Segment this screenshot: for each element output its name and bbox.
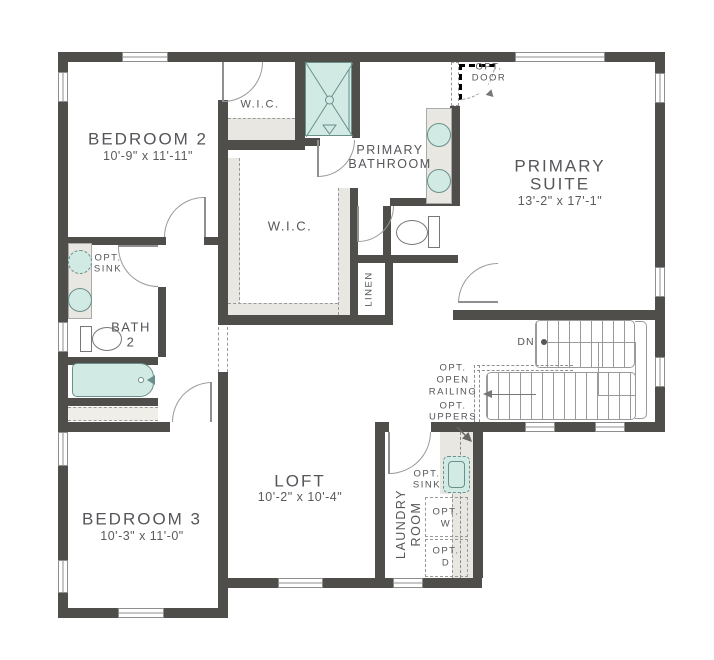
door-leaf — [388, 432, 390, 474]
tub-faucet-icon — [147, 375, 155, 385]
stairs-center-line — [545, 342, 635, 343]
closet-shelf — [228, 158, 240, 315]
wall-shower-right — [352, 62, 360, 138]
optional-sink — [68, 250, 92, 274]
annotation-opt-washer-1: OPT. — [432, 507, 459, 517]
room-label-laundry-2: ROOM — [409, 489, 424, 559]
shower-glass-icon — [306, 63, 353, 137]
closet-shelf — [228, 303, 338, 315]
room-label-laundry-1: LAUNDRY — [394, 489, 409, 559]
door-arc — [172, 382, 212, 422]
room-label-bath2-2: 2 — [127, 336, 136, 349]
room-dims-bedroom2: 10'-9" x 11'-11" — [103, 150, 193, 163]
window — [393, 578, 423, 588]
door-arc — [118, 247, 158, 287]
room-label-primary-bathroom-1: PRIMARY — [356, 144, 423, 157]
wall-wic-small-right — [295, 62, 305, 140]
annotation-stairs-down: DN — [517, 337, 534, 348]
window — [655, 357, 665, 387]
wall-loft-bottom — [218, 578, 482, 588]
door-leaf — [210, 382, 212, 422]
wall-bedroom3-right — [218, 422, 228, 618]
door-leaf — [118, 245, 158, 247]
room-label-wic-main: W.I.C. — [268, 220, 312, 233]
wall-bedroom3-top — [58, 422, 170, 432]
door-leaf — [204, 197, 206, 237]
annotation-opt-railing-2: OPEN — [437, 375, 470, 385]
stairwell-opening — [598, 342, 636, 396]
room-label-laundry: LAUNDRY ROOM — [394, 489, 424, 559]
window — [525, 422, 555, 432]
window — [655, 73, 665, 103]
annotation-opt-sink-laundry-2: SINK — [413, 480, 441, 490]
room-label-primary-bathroom-2: BATHROOM — [348, 158, 431, 171]
room-dims-bedroom3: 10'-3" x 11'-0" — [100, 530, 183, 543]
annotation-opt-washer-2: W — [441, 519, 451, 529]
window — [655, 267, 665, 297]
wall-wic-left — [218, 100, 228, 315]
room-label-bath2-1: BATH — [111, 321, 151, 334]
room-dims-loft: 10'-2" x 10'-4" — [258, 491, 342, 504]
window — [122, 52, 168, 62]
annotation-opt-door-1: OPT. — [475, 62, 502, 72]
window — [595, 422, 625, 432]
shower — [305, 62, 352, 136]
wall-stairs-bottom — [473, 422, 665, 432]
window — [118, 608, 164, 618]
annotation-opt-uppers-2: UPPERS — [429, 412, 477, 422]
wall-laundry-right — [473, 432, 483, 578]
annotation-opt-railing-3: RAILING — [429, 387, 478, 397]
stairs-down-dot — [541, 339, 547, 345]
room-label-primary-suite-1: PRIMARY — [514, 158, 605, 175]
stairs-turn — [635, 321, 647, 419]
closet-shelf — [228, 118, 295, 140]
wall-wic-bottom — [218, 315, 393, 325]
window — [58, 432, 68, 466]
annotation-opt-sink-laundry-1: OPT. — [413, 469, 440, 479]
closet-shelf — [68, 407, 158, 421]
door-leaf — [357, 206, 359, 242]
toilet-tank — [428, 216, 440, 248]
toilet-tank — [80, 326, 92, 352]
door-arc — [223, 62, 263, 102]
floor-plan: BEDROOM 2 10'-9" x 11'-11" W.I.C. PRIMAR… — [0, 0, 714, 660]
room-label-bedroom3: BEDROOM 3 — [82, 511, 202, 528]
window — [58, 560, 68, 593]
room-label-primary-suite-2: SUITE — [530, 176, 590, 193]
optional-uppers-arrow — [454, 424, 478, 448]
optional-sink-basin — [448, 461, 465, 488]
wall-hall-suite — [350, 255, 458, 263]
annotation-opt-sink-bath-1: OPT. — [94, 253, 121, 263]
window — [58, 322, 68, 352]
wall-bedroom2-bottom-b — [204, 237, 218, 245]
wall-laundry-left — [375, 432, 385, 578]
stairs-arrow-line — [492, 394, 536, 395]
room-dims-primary-suite: 13'-2" x 17'-1" — [518, 195, 602, 208]
wall-stairs-top — [453, 310, 665, 320]
window — [515, 52, 605, 62]
door-leaf — [458, 301, 498, 303]
door-leaf — [222, 62, 224, 102]
room-label-loft: LOFT — [274, 473, 325, 490]
wall-bath2-right — [158, 287, 166, 357]
sink — [68, 288, 92, 312]
door-leaf — [317, 140, 319, 177]
door-arc — [458, 263, 498, 303]
window — [278, 578, 323, 588]
wall-laundry-top-left — [375, 422, 389, 432]
annotation-opt-sink-bath-2: SINK — [94, 264, 122, 274]
optional-door-arrow — [486, 89, 497, 100]
optional-railing-line — [477, 365, 573, 371]
wall-tub-bottom — [58, 398, 158, 406]
stairs-arrow-head — [483, 390, 492, 398]
room-label-bedroom2: BEDROOM 2 — [88, 131, 208, 148]
wall-linen-right — [385, 263, 393, 325]
annotation-opt-dryer-1: OPT. — [432, 546, 459, 556]
closet-shelf — [338, 188, 350, 315]
annotation-opt-door-2: DOOR — [472, 73, 507, 83]
wall-wic-small-bottom — [228, 140, 305, 150]
wall-hall-loft — [218, 372, 228, 422]
optional-door-leaf — [451, 62, 459, 106]
toilet-bowl — [396, 220, 428, 245]
room-label-linen: LINEN — [364, 271, 374, 306]
door-arc — [164, 197, 204, 237]
annotation-opt-railing-1: OPT. — [439, 363, 466, 373]
sink — [427, 169, 451, 193]
annotation-opt-dryer-2: D — [442, 558, 450, 568]
room-label-wic-small: W.I.C. — [241, 100, 280, 111]
annotation-opt-uppers-1: OPT. — [439, 401, 466, 411]
sink — [427, 123, 451, 147]
window — [58, 72, 68, 102]
optional-opening — [218, 327, 228, 372]
tub-drain — [138, 377, 144, 383]
